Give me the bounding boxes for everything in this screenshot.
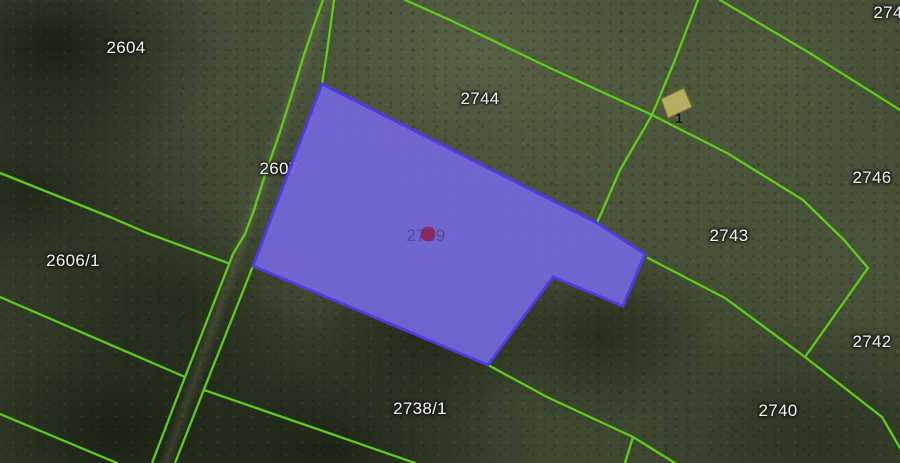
parcel-label-2743: 2743: [709, 226, 748, 246]
parcel-label-2744: 2744: [460, 89, 499, 109]
parcel-label-2604: 2604: [106, 38, 145, 58]
parcel-label-2746: 2746: [852, 168, 891, 188]
building-number-label: 1: [675, 110, 683, 126]
map-viewport[interactable]: 2607 2739 2604 2744 274 2606/1 2746 2743…: [0, 0, 900, 463]
parcel-label-2606-1: 2606/1: [46, 251, 100, 271]
parcel-point-marker: [421, 227, 436, 242]
parcel-label-2738-1: 2738/1: [393, 399, 447, 419]
parcel-label-2740: 2740: [758, 401, 797, 421]
parcel-label-2742: 2742: [852, 332, 891, 352]
marker-layer: [0, 0, 900, 463]
parcel-label-274-clipped: 274: [873, 3, 900, 23]
